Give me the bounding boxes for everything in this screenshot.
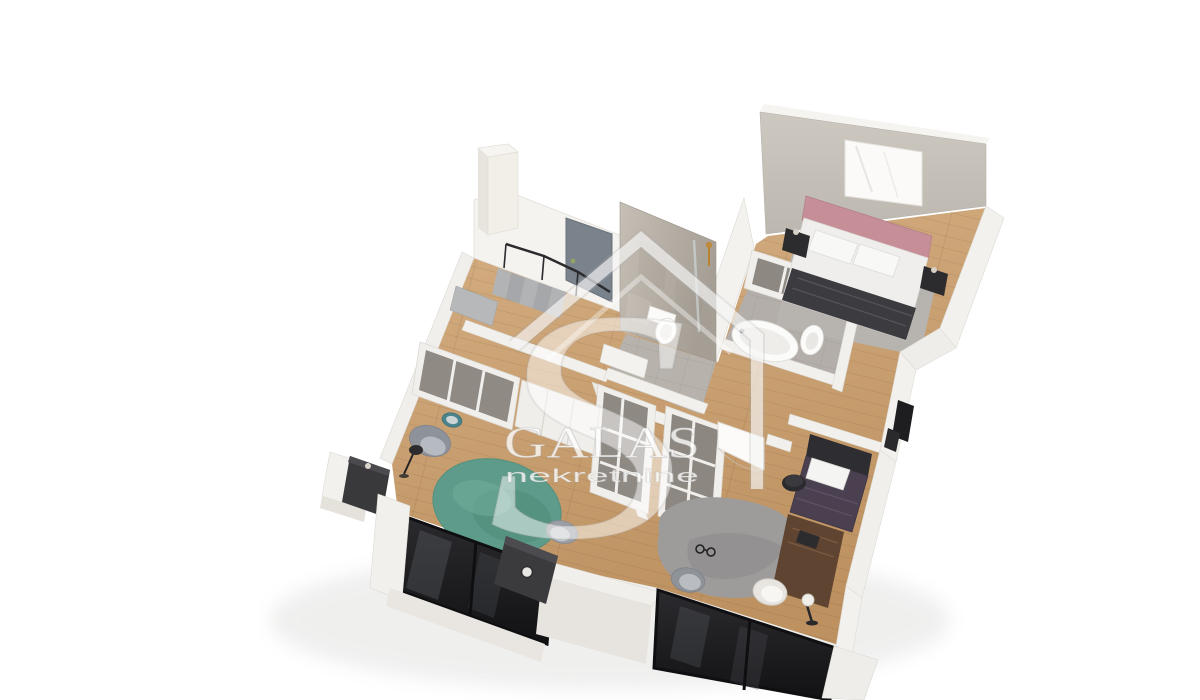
- watermark-subtitle: nekretnine: [505, 466, 699, 486]
- floor-lamp-base: [399, 474, 409, 478]
- round-side-table-top: [785, 475, 803, 487]
- gold-shower-head: [706, 242, 712, 248]
- sphere-lamp-base: [806, 621, 818, 626]
- floor-plan-page: S GALAS nekretnine: [0, 0, 1200, 700]
- watermark-brand: GALAS: [504, 418, 700, 467]
- nightstand-lamp-right: [931, 267, 937, 273]
- floor-lamp-shade: [409, 445, 423, 455]
- chimney-front-face: [488, 152, 518, 235]
- sphere-lamp-globe: [802, 594, 814, 606]
- floor-plan-render: S GALAS nekretnine: [0, 0, 1200, 700]
- chimney-west-face: [478, 148, 488, 235]
- nightstand-lamp-left: [793, 229, 799, 235]
- sideboard-vase: [365, 463, 371, 469]
